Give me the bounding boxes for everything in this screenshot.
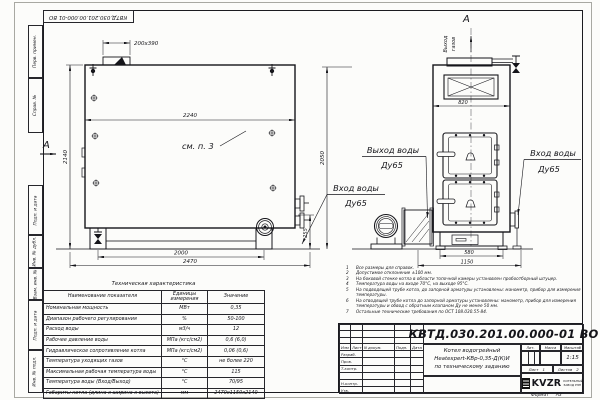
kvzr-logo-subtitle: КОТЕЛЬНЫЙ ЗАВОД РЭП: [563, 380, 583, 387]
dim-2470-label: 2470: [183, 259, 197, 265]
lit-value-cell: [521, 351, 540, 365]
water-outlet-dn: Ду65: [380, 160, 403, 170]
dim-hatch: [103, 40, 130, 55]
kvzr-logo-text: KVZR: [532, 378, 562, 389]
tech-row: Максимальная рабочая температура воды°С1…: [44, 367, 265, 378]
scale-header: Масштаб: [561, 344, 584, 351]
mass-header: Масса: [540, 344, 561, 351]
tech-row: Рабочее давление водыМПа (кгс/см2)0,6 (6…: [44, 335, 265, 346]
drain-valve: [94, 228, 102, 244]
scale-value: 1:15: [561, 351, 584, 365]
burner-front: [257, 219, 274, 236]
sheet-number: Лист1: [521, 365, 553, 373]
dim-2140-label: 2140: [63, 150, 69, 164]
water-inlet-mid-dn: Ду65: [344, 198, 367, 208]
water-inlet-right-dn: Ду65: [537, 164, 560, 174]
note-item: 6На отводящей трубе котла до запорной ар…: [346, 298, 582, 309]
lower-door: [437, 180, 499, 225]
gas-outlet-label-1: Выход: [443, 35, 449, 52]
title-block: Изм Лист N докум. Подп. Дата Разраб. Про…: [338, 323, 583, 393]
section-a-left-label: А: [42, 140, 50, 151]
see-note-label: см. п. 3: [182, 141, 214, 151]
format-note: Формат А3: [531, 393, 562, 398]
pipe-labels: Выход воды Ду65 Вход воды Ду65 Вход воды…: [302, 145, 581, 244]
gas-outlet-label-2: газов: [451, 37, 457, 51]
drawing-sheet: КВТД.030.201.00.000-01 ВО Перв. примен. …: [0, 0, 600, 400]
tech-row: Номинальная мощностьМВт0,35: [44, 304, 265, 315]
water-inlet-mid-label: Вход воды: [333, 183, 379, 193]
note-item: 7Остальные технические требования по ОСТ…: [346, 309, 582, 314]
product-name: Котел водогрейный Heatexpert-КВр-0,35-Д(…: [423, 344, 521, 376]
tech-table-header: Наименование показателя Единицыизмерения…: [44, 291, 265, 304]
dim-hatch-label: 200x390: [134, 41, 159, 47]
mass-value-cell: [540, 351, 561, 365]
title-block-empty-cell: [423, 376, 521, 394]
tech-row: Диапазон рабочего регулирования%50-100: [44, 314, 265, 325]
tech-row: Габариты котла (длина х ширина х высота)…: [44, 388, 265, 399]
inlet-flange-right: [510, 211, 521, 249]
dim-2240-label: 2240: [183, 113, 197, 119]
lifting-lug-right: [269, 64, 276, 76]
title-block-doc-number: КВТД.030.201.00.000-01 ВО: [423, 324, 584, 344]
sheets-total: Листов2: [553, 365, 585, 373]
tech-row: Гидравлическое сопротивление котлаМПа (к…: [44, 346, 265, 357]
dim-2050-label: 2050: [320, 151, 326, 165]
tech-table-title: Техническая характеристика: [43, 281, 264, 287]
water-inlet-right-label: Вход воды: [530, 148, 576, 158]
dim-580-label: 580: [464, 250, 474, 256]
signature-header: Изм Лист N докум. Подп. Дата: [340, 344, 424, 351]
lifting-lug-left: [90, 64, 97, 76]
dim-2000-label: 2000: [174, 251, 188, 257]
tech-row: Температура воды (Вход/Выход)°С70/95: [44, 378, 265, 389]
upper-door: [437, 133, 499, 178]
dim-820-label: 820: [458, 100, 468, 106]
tech-table: Наименование показателя Единицыизмерения…: [43, 290, 265, 399]
fan-duct: [402, 208, 434, 246]
section-a-top-label: А: [462, 14, 470, 25]
notes-list: 1Все размеры для справок. 2Допустимое от…: [346, 265, 582, 314]
tech-characteristics: Техническая характеристика Наименование …: [43, 281, 264, 399]
blower-fan: [371, 215, 402, 250]
front-view: 200x390 2240 см. п. 3 А 2140: [40, 40, 320, 268]
side-view: А Выход газов 820: [320, 14, 533, 268]
tech-row: Расход водым3/ч12: [44, 325, 265, 336]
right-wall-flanges: [295, 196, 309, 228]
note-item: 5На подводящей трубе котла, до запорной …: [346, 287, 582, 298]
company-logo: KVZR КОТЕЛЬНЫЙ ЗАВОД РЭП: [521, 373, 584, 394]
tech-row: Температура уходящих газов°Сне более 220: [44, 356, 265, 367]
lit-header: Лит.: [521, 344, 540, 351]
kvzr-logo-icon: [522, 378, 530, 389]
water-outlet-label: Выход воды: [367, 145, 420, 155]
